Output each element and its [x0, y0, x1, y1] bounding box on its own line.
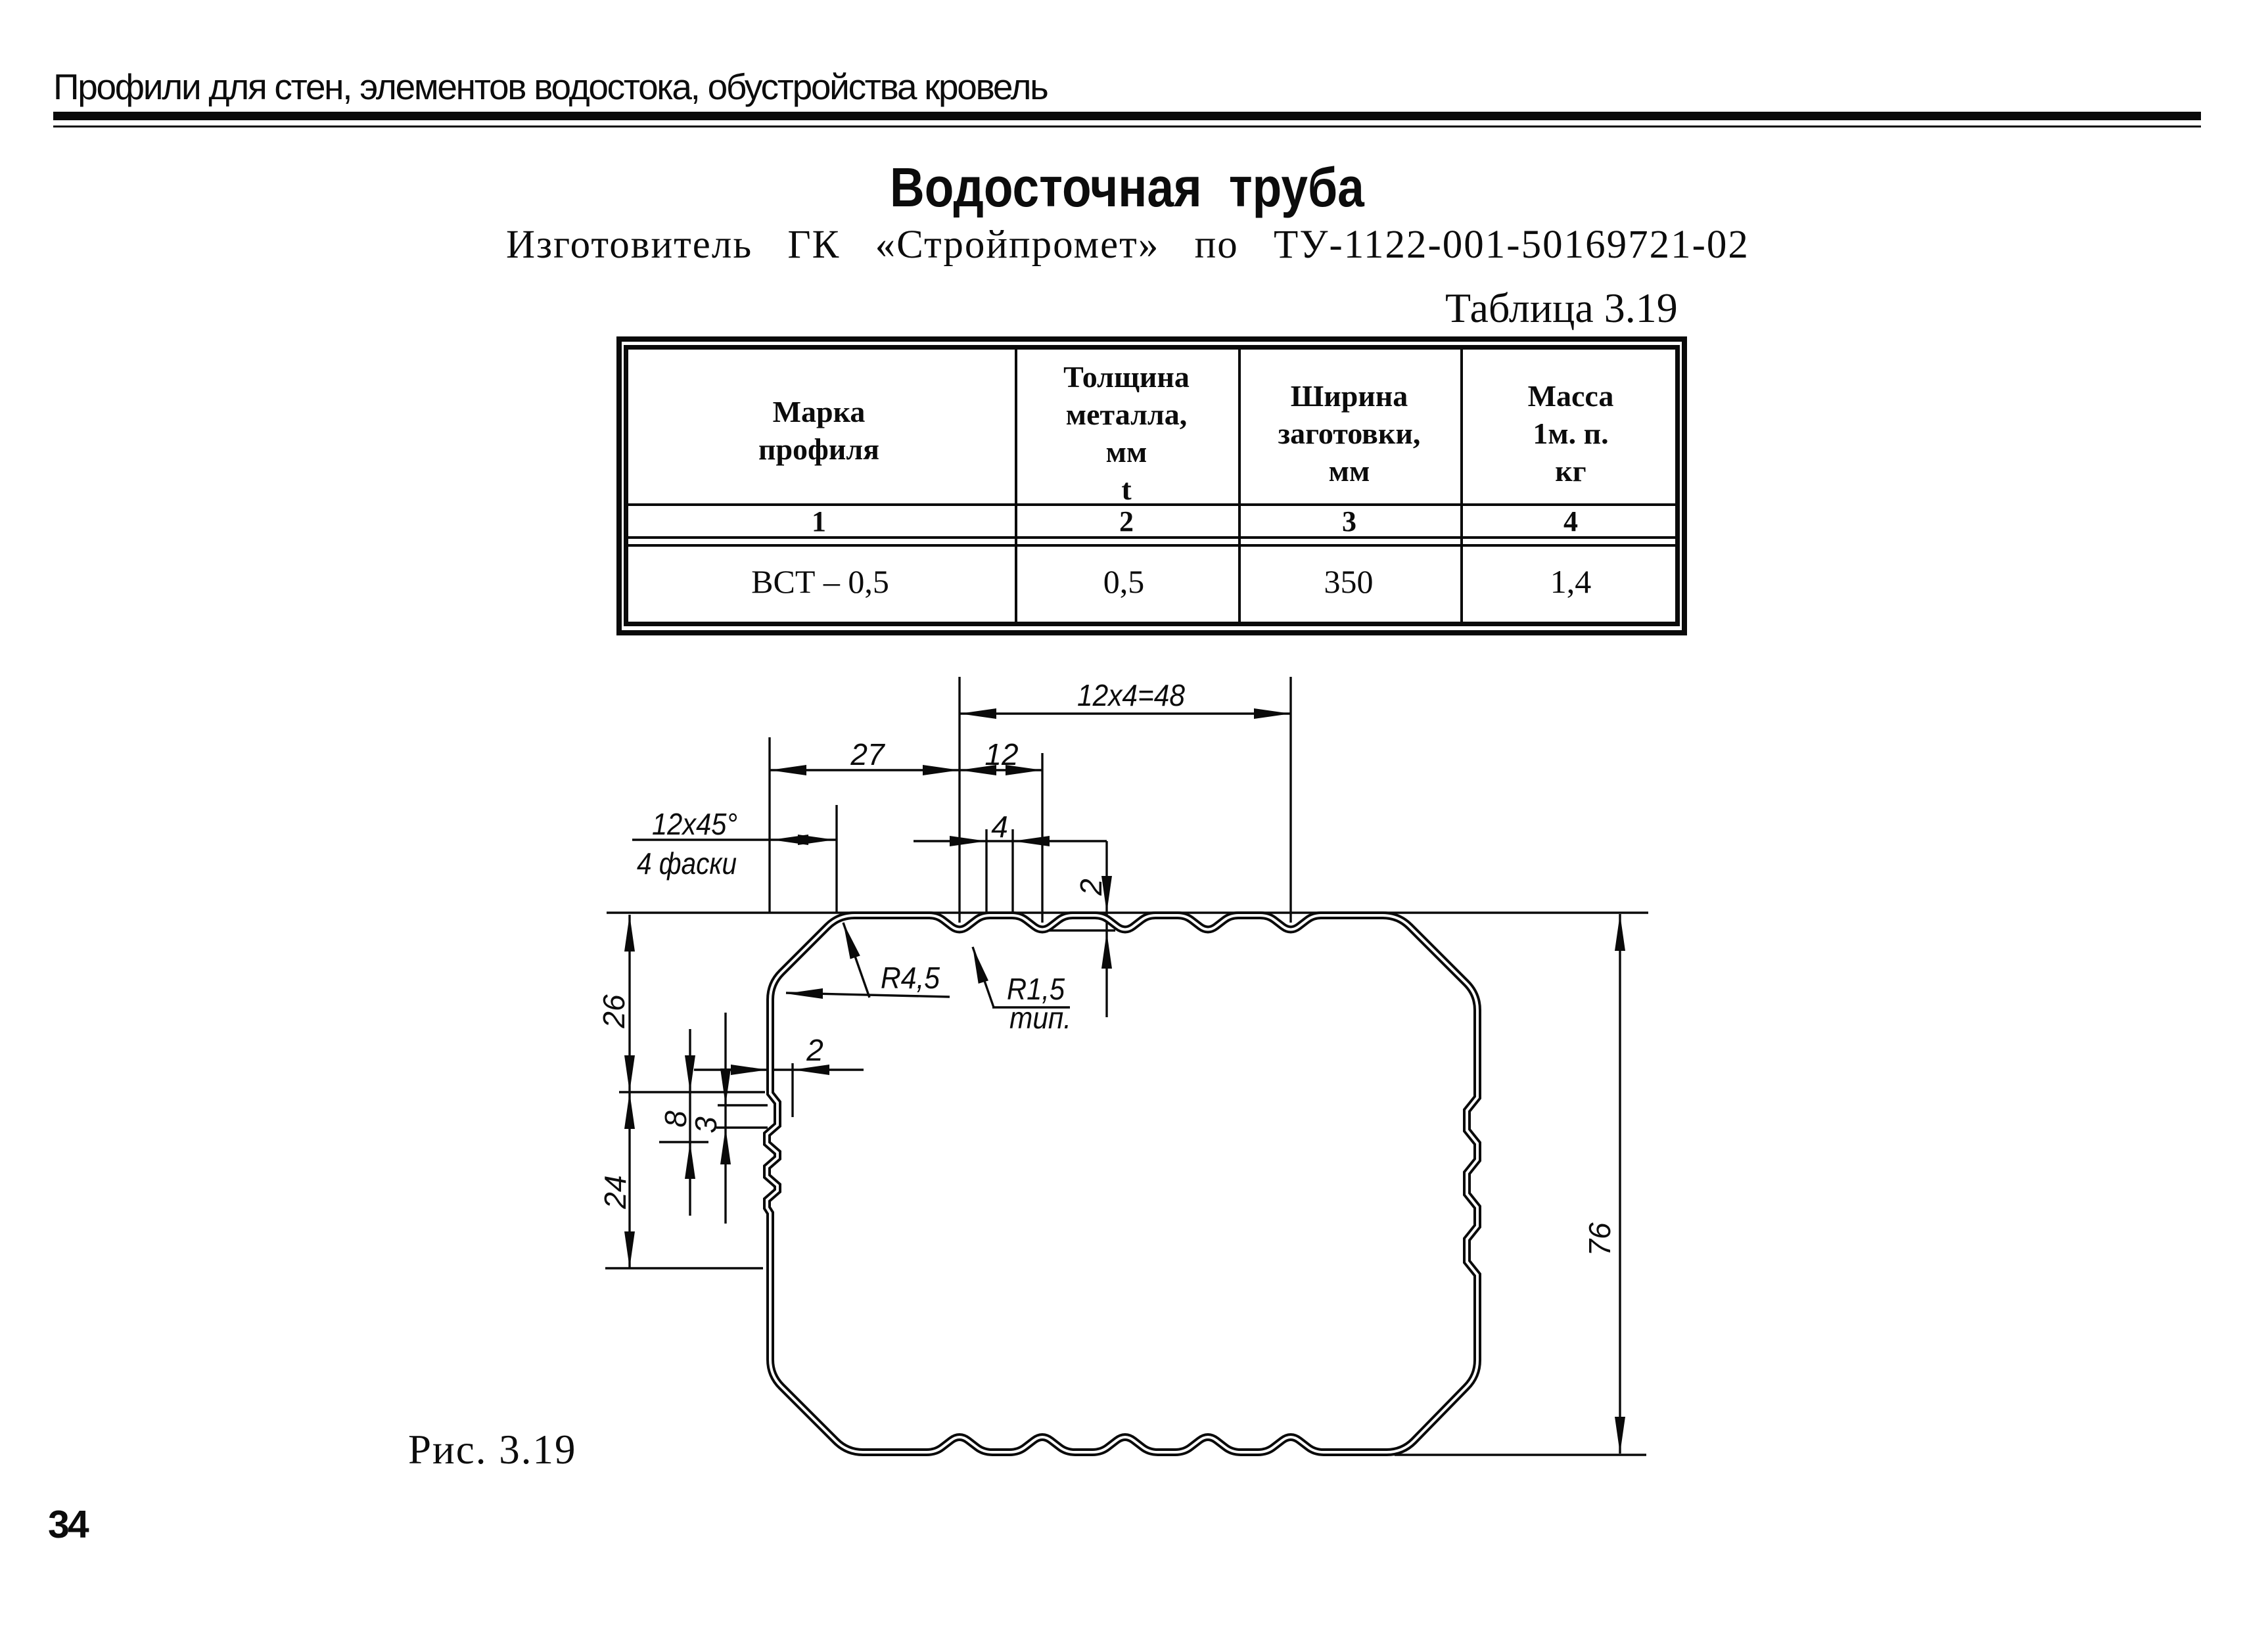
svg-text:2: 2	[1074, 879, 1108, 896]
svg-text:тип.: тип.	[1009, 1001, 1071, 1035]
svg-text:26: 26	[597, 994, 631, 1029]
svg-text:27: 27	[850, 737, 885, 771]
svg-text:4 фаски: 4 фаски	[637, 846, 737, 881]
svg-text:12: 12	[984, 737, 1018, 771]
svg-text:2: 2	[806, 1033, 823, 1067]
svg-text:8: 8	[659, 1111, 693, 1128]
svg-text:76: 76	[1583, 1222, 1617, 1256]
svg-text:24: 24	[598, 1175, 632, 1209]
svg-text:12x45°: 12x45°	[652, 807, 737, 841]
svg-text:R4,5: R4,5	[881, 961, 940, 995]
svg-text:12x4=48: 12x4=48	[1077, 678, 1185, 712]
svg-text:3: 3	[689, 1116, 723, 1134]
svg-text:4: 4	[991, 810, 1008, 844]
